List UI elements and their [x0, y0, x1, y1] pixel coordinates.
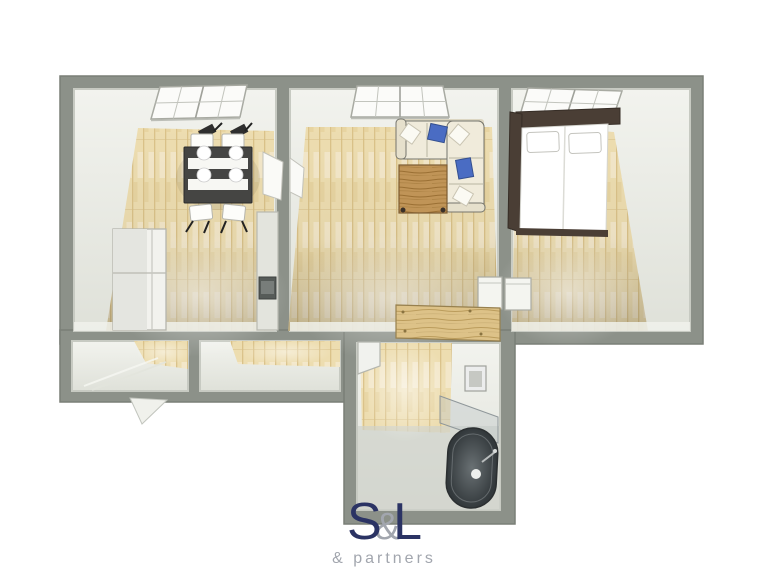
bed-pillow-left [527, 131, 560, 152]
storage-left-light [136, 339, 192, 365]
entrance-door-leaf [130, 398, 167, 424]
double-bed [508, 108, 620, 237]
refrigerator [113, 229, 166, 330]
floorplan-canvas: S&L & partners [0, 0, 768, 576]
living-window [351, 86, 449, 119]
plate [197, 168, 211, 182]
blue-cushion [456, 158, 474, 179]
kitchen-bottom-wall-face [74, 322, 276, 331]
brand-letter-s: S [347, 493, 381, 551]
brand-logo: S&L & partners [0, 496, 768, 567]
wood-knot [480, 333, 483, 336]
kitchen-window [151, 85, 247, 121]
bedroom-bottom-wall-face [512, 322, 690, 331]
coffee-table [399, 165, 447, 213]
wall-sink [465, 366, 486, 391]
brand-wordmark: S&L [0, 496, 768, 548]
plate [229, 146, 243, 160]
tub-drain [471, 469, 481, 479]
storage-right-light [240, 339, 332, 365]
table-foot [401, 208, 406, 213]
wood-knot [469, 310, 472, 313]
fridge-left-face [113, 229, 147, 330]
faucet-head [493, 449, 497, 453]
floorplan-render [0, 0, 768, 576]
storage-right-room [230, 339, 340, 367]
dining-chair-bottom-right [222, 204, 245, 221]
blue-cushion [428, 124, 448, 143]
wood-knot [404, 330, 407, 333]
bed-pillow-right [569, 132, 602, 153]
brand-tagline: & partners [0, 551, 768, 567]
bedroom-console-table [505, 278, 531, 310]
wood-knot [402, 311, 405, 314]
hallway-sideboard [396, 305, 500, 341]
brand-letter-l: L [393, 493, 421, 551]
table-foot [441, 208, 446, 213]
dining-chair-top-right [222, 134, 244, 148]
oven-door [261, 281, 274, 294]
sink-basin [469, 371, 482, 387]
plate [197, 146, 211, 160]
tall-kitchen-unit [257, 212, 278, 330]
dining-chair-bottom-left [189, 204, 212, 221]
plate [229, 168, 243, 182]
